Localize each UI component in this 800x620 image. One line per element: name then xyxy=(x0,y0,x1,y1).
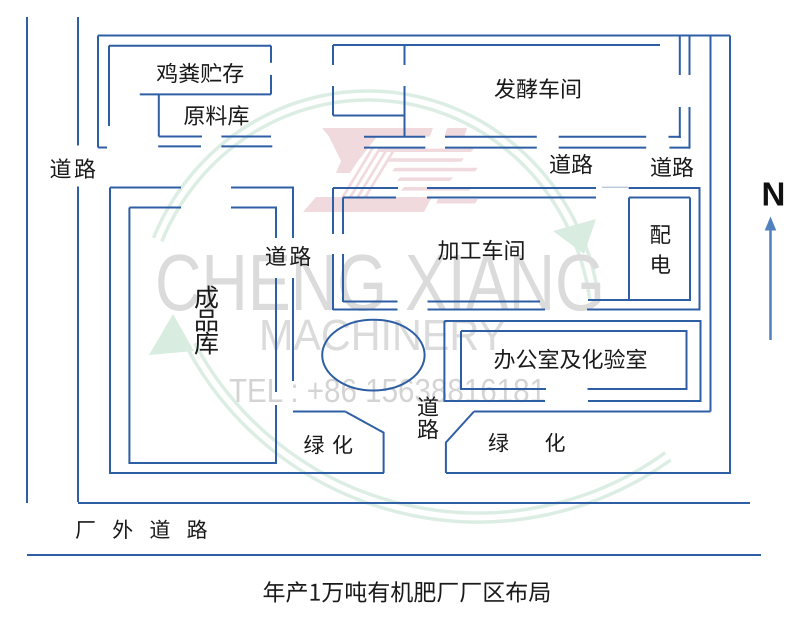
svg-text:N: N xyxy=(762,176,786,213)
svg-text:MACHINERY: MACHINERY xyxy=(259,311,506,360)
